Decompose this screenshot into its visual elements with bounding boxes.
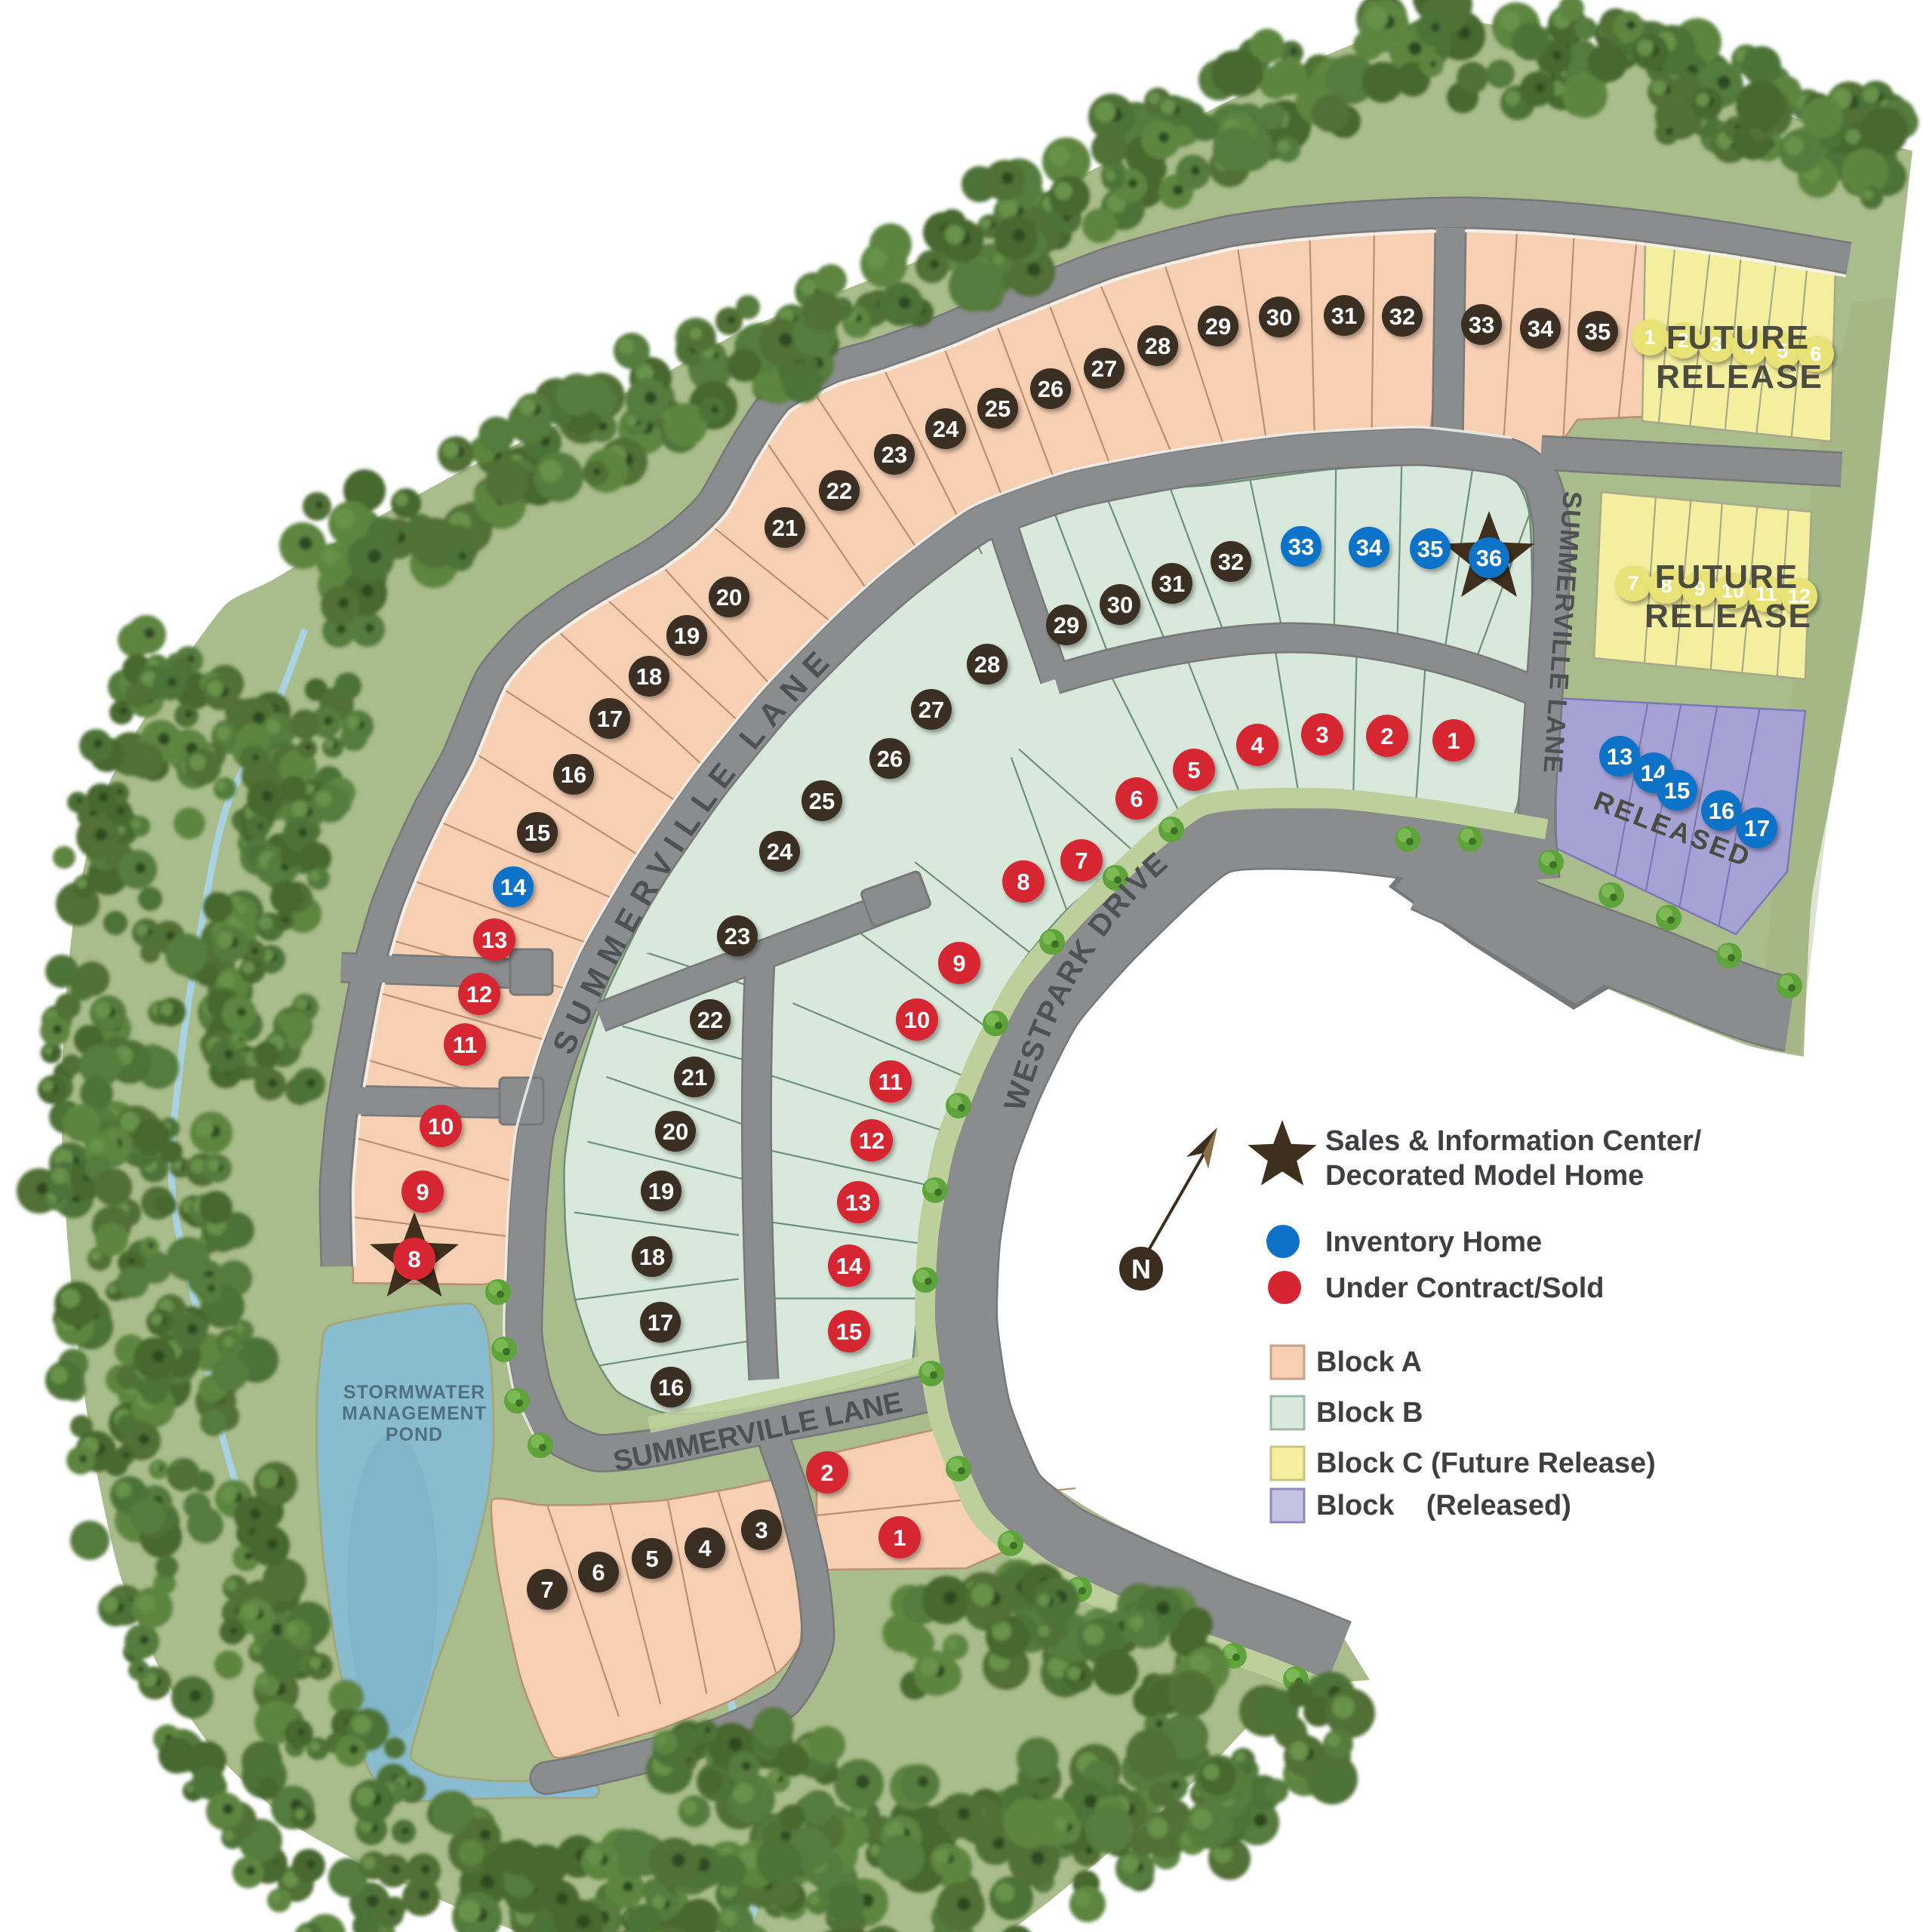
svg-text:13: 13	[482, 927, 507, 953]
svg-text:34: 34	[1356, 534, 1383, 561]
svg-text:32: 32	[1389, 303, 1415, 330]
svg-text:16: 16	[561, 761, 586, 788]
svg-text:14: 14	[500, 874, 527, 900]
svg-text:21: 21	[682, 1064, 707, 1091]
svg-text:2: 2	[1380, 723, 1393, 749]
svg-text:N: N	[1131, 1254, 1151, 1284]
svg-text:17: 17	[597, 706, 623, 732]
svg-text:31: 31	[1331, 303, 1357, 329]
svg-text:POND: POND	[386, 1424, 443, 1445]
svg-text:30: 30	[1266, 304, 1292, 331]
svg-text:6: 6	[1130, 786, 1143, 812]
svg-text:1: 1	[1447, 728, 1460, 754]
svg-text:17: 17	[1744, 815, 1770, 841]
svg-text:13: 13	[1607, 743, 1632, 770]
svg-text:4: 4	[1251, 732, 1264, 758]
svg-text:Under Contract/Sold: Under Contract/Sold	[1325, 1272, 1604, 1304]
svg-text:5: 5	[1187, 757, 1200, 783]
svg-text:24: 24	[933, 416, 959, 442]
svg-text:MANAGEMENT: MANAGEMENT	[342, 1403, 487, 1424]
svg-text:18: 18	[639, 1244, 665, 1270]
svg-text:21: 21	[772, 515, 798, 541]
svg-text:4: 4	[698, 1535, 712, 1561]
svg-text:RELEASE: RELEASE	[1645, 598, 1812, 635]
svg-text:22: 22	[697, 1007, 723, 1033]
svg-text:29: 29	[1205, 313, 1231, 340]
svg-text:32: 32	[1218, 549, 1244, 575]
svg-text:23: 23	[882, 441, 907, 468]
svg-text:15: 15	[836, 1318, 862, 1345]
svg-text:18: 18	[636, 663, 662, 690]
svg-text:Block C (Future Release): Block C (Future Release)	[1316, 1447, 1656, 1479]
svg-text:11: 11	[878, 1069, 903, 1095]
svg-text:2: 2	[820, 1460, 833, 1486]
svg-text:35: 35	[1417, 536, 1443, 562]
svg-text:13: 13	[845, 1189, 871, 1216]
svg-text:1: 1	[893, 1524, 906, 1551]
svg-text:27: 27	[918, 697, 944, 723]
svg-text:29: 29	[1054, 612, 1079, 638]
svg-text:16: 16	[658, 1374, 684, 1401]
svg-text:25: 25	[985, 395, 1011, 422]
svg-text:Block B: Block B	[1316, 1397, 1423, 1429]
svg-text:RELEASE: RELEASE	[1656, 358, 1823, 395]
svg-text:26: 26	[877, 746, 903, 772]
svg-text:STORMWATER: STORMWATER	[343, 1382, 485, 1403]
svg-text:7: 7	[1627, 572, 1638, 595]
svg-text:25: 25	[809, 788, 835, 814]
svg-text:FUTURE: FUTURE	[1655, 558, 1798, 595]
svg-text:28: 28	[974, 651, 1000, 678]
svg-text:33: 33	[1469, 312, 1494, 338]
svg-text:11: 11	[453, 1032, 478, 1058]
svg-text:5: 5	[645, 1546, 658, 1572]
svg-text:15: 15	[525, 820, 550, 846]
svg-text:19: 19	[674, 623, 700, 649]
svg-text:16: 16	[1709, 798, 1734, 824]
svg-text:9: 9	[952, 950, 965, 977]
svg-text:3: 3	[1315, 721, 1328, 748]
svg-text:14: 14	[836, 1253, 863, 1279]
svg-text:Block A: Block A	[1316, 1346, 1422, 1378]
svg-text:8: 8	[408, 1246, 420, 1272]
svg-text:27: 27	[1091, 355, 1117, 382]
svg-text:23: 23	[725, 923, 750, 949]
svg-text:35: 35	[1585, 318, 1611, 345]
svg-text:9: 9	[416, 1179, 429, 1205]
svg-text:Inventory Home: Inventory Home	[1325, 1226, 1542, 1258]
svg-text:6: 6	[592, 1559, 605, 1586]
svg-text:26: 26	[1038, 376, 1063, 402]
svg-text:28: 28	[1145, 333, 1171, 359]
svg-text:31: 31	[1159, 571, 1185, 597]
svg-text:33: 33	[1288, 534, 1314, 560]
svg-text:8: 8	[1017, 869, 1029, 895]
svg-text:10: 10	[428, 1113, 454, 1140]
svg-text:FUTURE: FUTURE	[1666, 319, 1810, 356]
svg-text:19: 19	[648, 1178, 674, 1204]
svg-text:1: 1	[1644, 326, 1655, 349]
svg-text:20: 20	[663, 1118, 688, 1145]
svg-text:Block (Released): Block (Released)	[1316, 1490, 1571, 1521]
svg-text:3: 3	[755, 1517, 768, 1543]
svg-text:20: 20	[716, 584, 742, 611]
svg-text:Decorated Model Home: Decorated Model Home	[1325, 1160, 1644, 1192]
svg-text:22: 22	[826, 478, 852, 504]
svg-text:10: 10	[904, 1007, 930, 1033]
svg-text:12: 12	[859, 1128, 885, 1154]
svg-text:36: 36	[1476, 545, 1502, 571]
svg-text:7: 7	[540, 1577, 553, 1603]
svg-text:12: 12	[466, 981, 492, 1008]
svg-text:17: 17	[648, 1309, 673, 1336]
svg-text:34: 34	[1528, 315, 1554, 342]
svg-text:Sales & Information Center/: Sales & Information Center/	[1325, 1125, 1702, 1157]
svg-text:7: 7	[1075, 848, 1088, 874]
svg-text:24: 24	[767, 838, 793, 865]
svg-text:30: 30	[1107, 592, 1133, 618]
svg-text:15: 15	[1664, 777, 1690, 804]
